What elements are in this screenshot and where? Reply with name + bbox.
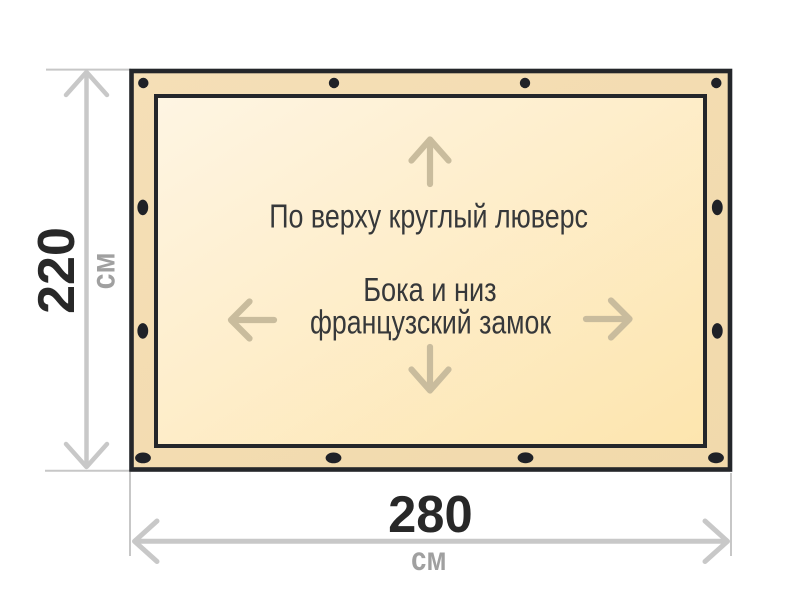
svg-text:см: см xyxy=(85,252,122,289)
svg-text:По верху круглый люверс: По верху круглый люверс xyxy=(269,198,588,235)
svg-text:280: 280 xyxy=(388,486,473,544)
svg-text:см: см xyxy=(411,540,447,577)
svg-text:Бока и низ: Бока и низ xyxy=(363,271,496,308)
svg-text:220: 220 xyxy=(28,227,86,314)
svg-text:французский замок: французский замок xyxy=(310,303,552,340)
